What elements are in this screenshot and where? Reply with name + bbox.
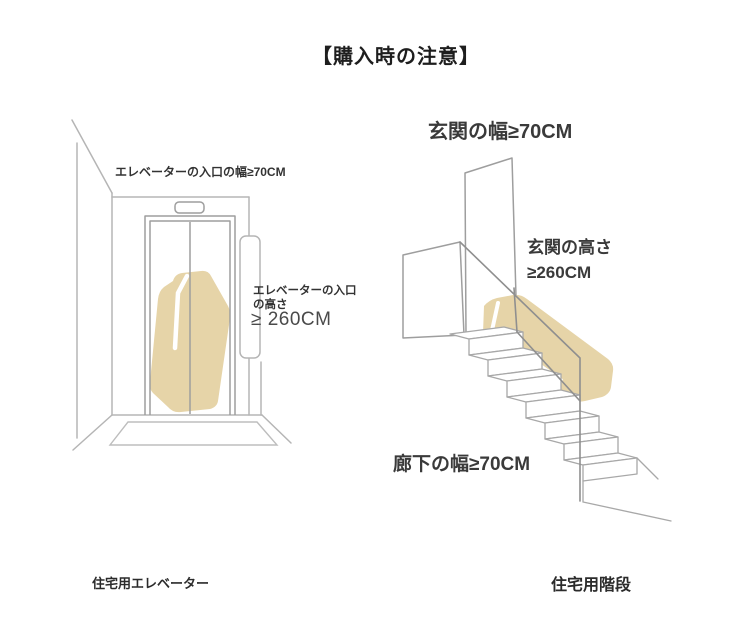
purchase-notice-infographic: 【購入時の注意】 エレベーターの入口の幅≥70CM エレベーターの入口 の高さ … <box>0 0 750 629</box>
line-art-canvas <box>0 0 750 629</box>
elevator-entrance-height-value: ≥ 260CM <box>251 309 331 332</box>
elevator-entrance-width-label: エレベーターの入口の幅≥70CM <box>115 165 286 179</box>
side-door-panel <box>403 242 464 338</box>
entrance-height-label: 玄関の高さ ≥260CM <box>527 236 612 285</box>
corridor-width-label: 廊下の幅≥70CM <box>393 454 530 477</box>
floor-display <box>175 202 204 213</box>
elevator-caption: 住宅用エレベーター <box>92 576 209 592</box>
page-title: 【購入時の注意】 <box>312 45 480 69</box>
stairs-caption: 住宅用階段 <box>551 576 631 595</box>
entrance-width-label: 玄関の幅≥70CM <box>428 120 572 144</box>
floor-mat <box>110 422 277 445</box>
